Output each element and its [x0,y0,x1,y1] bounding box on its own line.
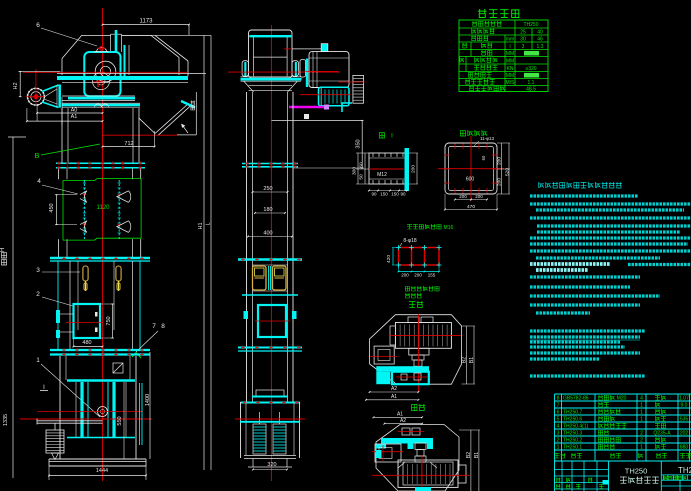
svg-text:Q235-A: Q235-A [653,431,671,437]
svg-text:TH250.6: TH250.6 [563,417,582,423]
svg-text:6: 6 [557,410,560,416]
svg-text:B: B [35,153,40,160]
svg-text:1: 1 [640,410,643,416]
svg-text:1: 1 [640,417,643,423]
svg-text:46: 46 [537,37,543,43]
svg-text:H2: H2 [13,82,19,89]
svg-text:3: 3 [522,44,525,50]
svg-text:3: 3 [36,267,40,274]
svg-text:200: 200 [414,273,422,278]
svg-text:KN: KN [507,66,514,72]
svg-text:A1: A1 [397,412,403,418]
svg-text:TH250.4(1): TH250.4(1) [563,424,589,430]
svg-text:M20: M20 [617,396,627,402]
svg-text:M16: M16 [444,225,454,231]
svg-text:B1: B1 [474,452,480,458]
svg-text:200: 200 [459,194,467,199]
svg-text:520: 520 [505,168,511,176]
svg-text:200: 200 [401,273,409,278]
svg-text:600: 600 [466,177,475,183]
svg-text:150: 150 [380,192,388,197]
svg-text:2: 2 [36,291,40,298]
svg-text:A1: A1 [391,394,397,400]
svg-text:GB5782-86: GB5782-86 [563,396,589,402]
svg-text:7: 7 [557,403,560,409]
svg-text:A2: A2 [391,386,397,392]
svg-text:1: 1 [36,357,40,364]
svg-text:7: 7 [152,323,156,330]
svg-text:A2: A2 [400,418,406,424]
svg-text:4: 4 [37,178,41,185]
svg-text:880: 880 [680,445,689,451]
svg-text:60: 60 [481,155,486,160]
svg-text:3: 3 [557,431,560,437]
svg-text:MM: MM [506,51,514,57]
svg-text:200: 200 [497,157,503,165]
svg-text:750: 750 [106,316,112,325]
svg-text:30: 30 [520,37,526,43]
svg-text:420: 420 [386,255,392,263]
svg-text:50: 50 [359,162,365,168]
svg-text:l: l [509,44,510,50]
svg-text:TH250: TH250 [625,467,648,476]
svg-text:40: 40 [537,30,543,36]
svg-text:400: 400 [263,231,272,237]
svg-text:mm: mm [506,37,514,43]
svg-text:1400: 1400 [145,394,151,406]
svg-text:9.0: 9.0 [681,403,688,409]
svg-text:48.5: 48.5 [526,87,536,93]
svg-text:90: 90 [400,192,406,197]
svg-text:350: 350 [356,139,362,148]
svg-text:8: 8 [161,323,165,330]
svg-text:11-φ13: 11-φ13 [480,136,495,141]
svg-text:1: 1 [640,403,643,409]
svg-text:200: 200 [497,178,503,186]
svg-text:180: 180 [263,207,272,213]
svg-text:TH250.2: TH250.2 [563,438,582,444]
svg-text:1173: 1173 [140,19,154,25]
svg-text:155: 155 [428,273,436,278]
svg-text:300: 300 [352,167,358,175]
svg-text:1: 1 [640,445,643,451]
svg-text:A1: A1 [71,114,78,120]
svg-text:4: 4 [640,396,643,402]
svg-text:1.1: 1.1 [528,80,535,86]
svg-text:M12: M12 [377,172,387,178]
svg-text:1444: 1444 [96,468,108,474]
svg-text:≥320: ≥320 [525,66,536,72]
svg-text:150: 150 [391,192,399,197]
svg-text:M/S: M/S [506,80,516,86]
svg-text:2: 2 [640,438,643,444]
svg-text:H: H [0,248,6,252]
svg-text:320: 320 [267,462,276,468]
svg-text:B2: B2 [466,452,472,458]
svg-text:1335: 1335 [3,414,9,426]
svg-text:550: 550 [117,416,123,425]
svg-text:25: 25 [520,30,526,36]
svg-text:5: 5 [557,417,560,423]
svg-text:B2: B2 [462,357,468,363]
svg-text:1.3: 1.3 [537,44,544,50]
svg-text:TH250.1: TH250.1 [563,445,582,451]
svg-text:8: 8 [557,396,560,402]
svg-text:200: 200 [475,194,483,199]
svg-text:TH2: TH2 [678,466,691,475]
svg-text:H1: H1 [198,222,204,229]
svg-text:480: 480 [82,340,91,346]
svg-text:2: 2 [557,438,560,444]
svg-text:250: 250 [263,186,272,192]
svg-text:90: 90 [371,192,377,197]
svg-text:202: 202 [680,431,689,437]
svg-text:A0: A0 [71,107,78,113]
svg-text:1: 1 [557,445,560,451]
svg-text:8-φ18: 8-φ18 [403,238,416,244]
svg-text:535: 535 [680,417,689,423]
svg-text:TH250.7: TH250.7 [563,410,582,416]
svg-text:L: L [206,222,212,225]
svg-text:6: 6 [36,22,40,29]
svg-text:470: 470 [467,204,475,210]
svg-text:MM: MM [506,73,514,79]
svg-text:TH250: TH250 [523,22,538,28]
svg-text:450: 450 [49,203,55,212]
svg-text:712: 712 [124,141,133,147]
svg-text:200: 200 [411,165,417,173]
svg-text:1120: 1120 [97,205,111,211]
svg-text:MM: MM [506,58,514,64]
svg-text:1.07: 1.07 [679,396,689,402]
svg-text:TH250.3: TH250.3 [563,431,582,437]
svg-text:2: 2 [640,431,643,437]
svg-text:B1: B1 [469,357,475,363]
svg-text:50: 50 [359,174,365,180]
svg-text:4: 4 [557,424,560,430]
